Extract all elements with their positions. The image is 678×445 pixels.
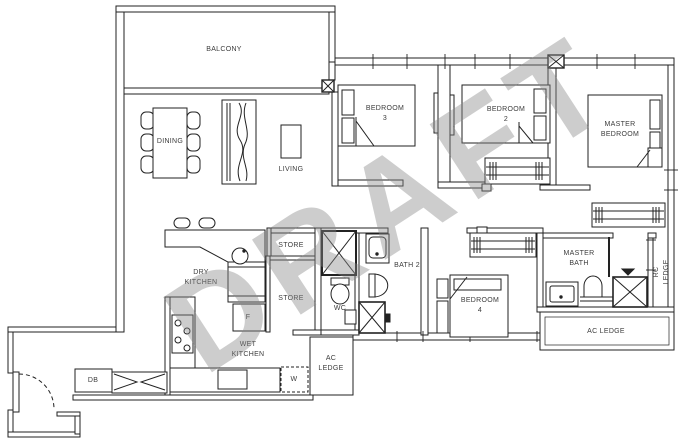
master-wardrobe [592,203,665,227]
label-fridge: F [246,313,251,323]
master-shower [613,269,647,307]
wc-toilet-icon [331,278,349,304]
room-label-store-lower: STORE [278,294,304,304]
room-label-wet-kitchen: WET KITCHEN [232,340,265,360]
room-label-dining: DINING [157,137,183,147]
floor-plan-drawing [0,0,678,445]
label-washer: W [291,375,298,385]
wc-basin [345,310,356,324]
entry-door [13,372,54,412]
master-sink-icon [546,282,578,306]
label-rc-ledge: RC LEDGE [652,259,672,284]
room-label-store-upper: STORE [278,241,304,251]
bath2-toilet-icon [369,274,388,297]
floor-plan: BALCONY DINING LIVING BEDROOM 3 BEDROOM … [0,0,678,445]
room-label-living: LIVING [279,165,304,175]
room-label-master-bedroom: MASTER BEDROOM [601,120,639,140]
shoe-cabinet [112,372,167,393]
master-toilet-icon [580,276,613,301]
room-label-bedroom-2: BEDROOM 2 [487,105,525,125]
room-label-master-bath: MASTER BATH [564,249,595,269]
label-ac-ledge: AC LEDGE [587,327,625,337]
shaft-icon [322,231,356,275]
room-label-bedroom-3: BEDROOM 3 [366,104,404,124]
tv-console [222,100,256,184]
room-label-balcony: BALCONY [206,45,242,55]
stove-icon [172,315,193,353]
label-ac-ledge-small: AC LEDGE [318,354,343,374]
label-db: DB [88,376,98,386]
room-label-bath-2: BATH 2 [394,261,420,271]
room-label-dry-kitchen: DRY KITCHEN [185,268,218,288]
bath2-sink-icon [366,234,389,263]
bath2-shower [359,302,390,333]
room-label-bedroom-4: BEDROOM 4 [461,296,499,316]
dry-kitchen-counter [165,218,265,302]
room-label-wc: WC [334,304,346,314]
coffee-table [281,125,301,158]
